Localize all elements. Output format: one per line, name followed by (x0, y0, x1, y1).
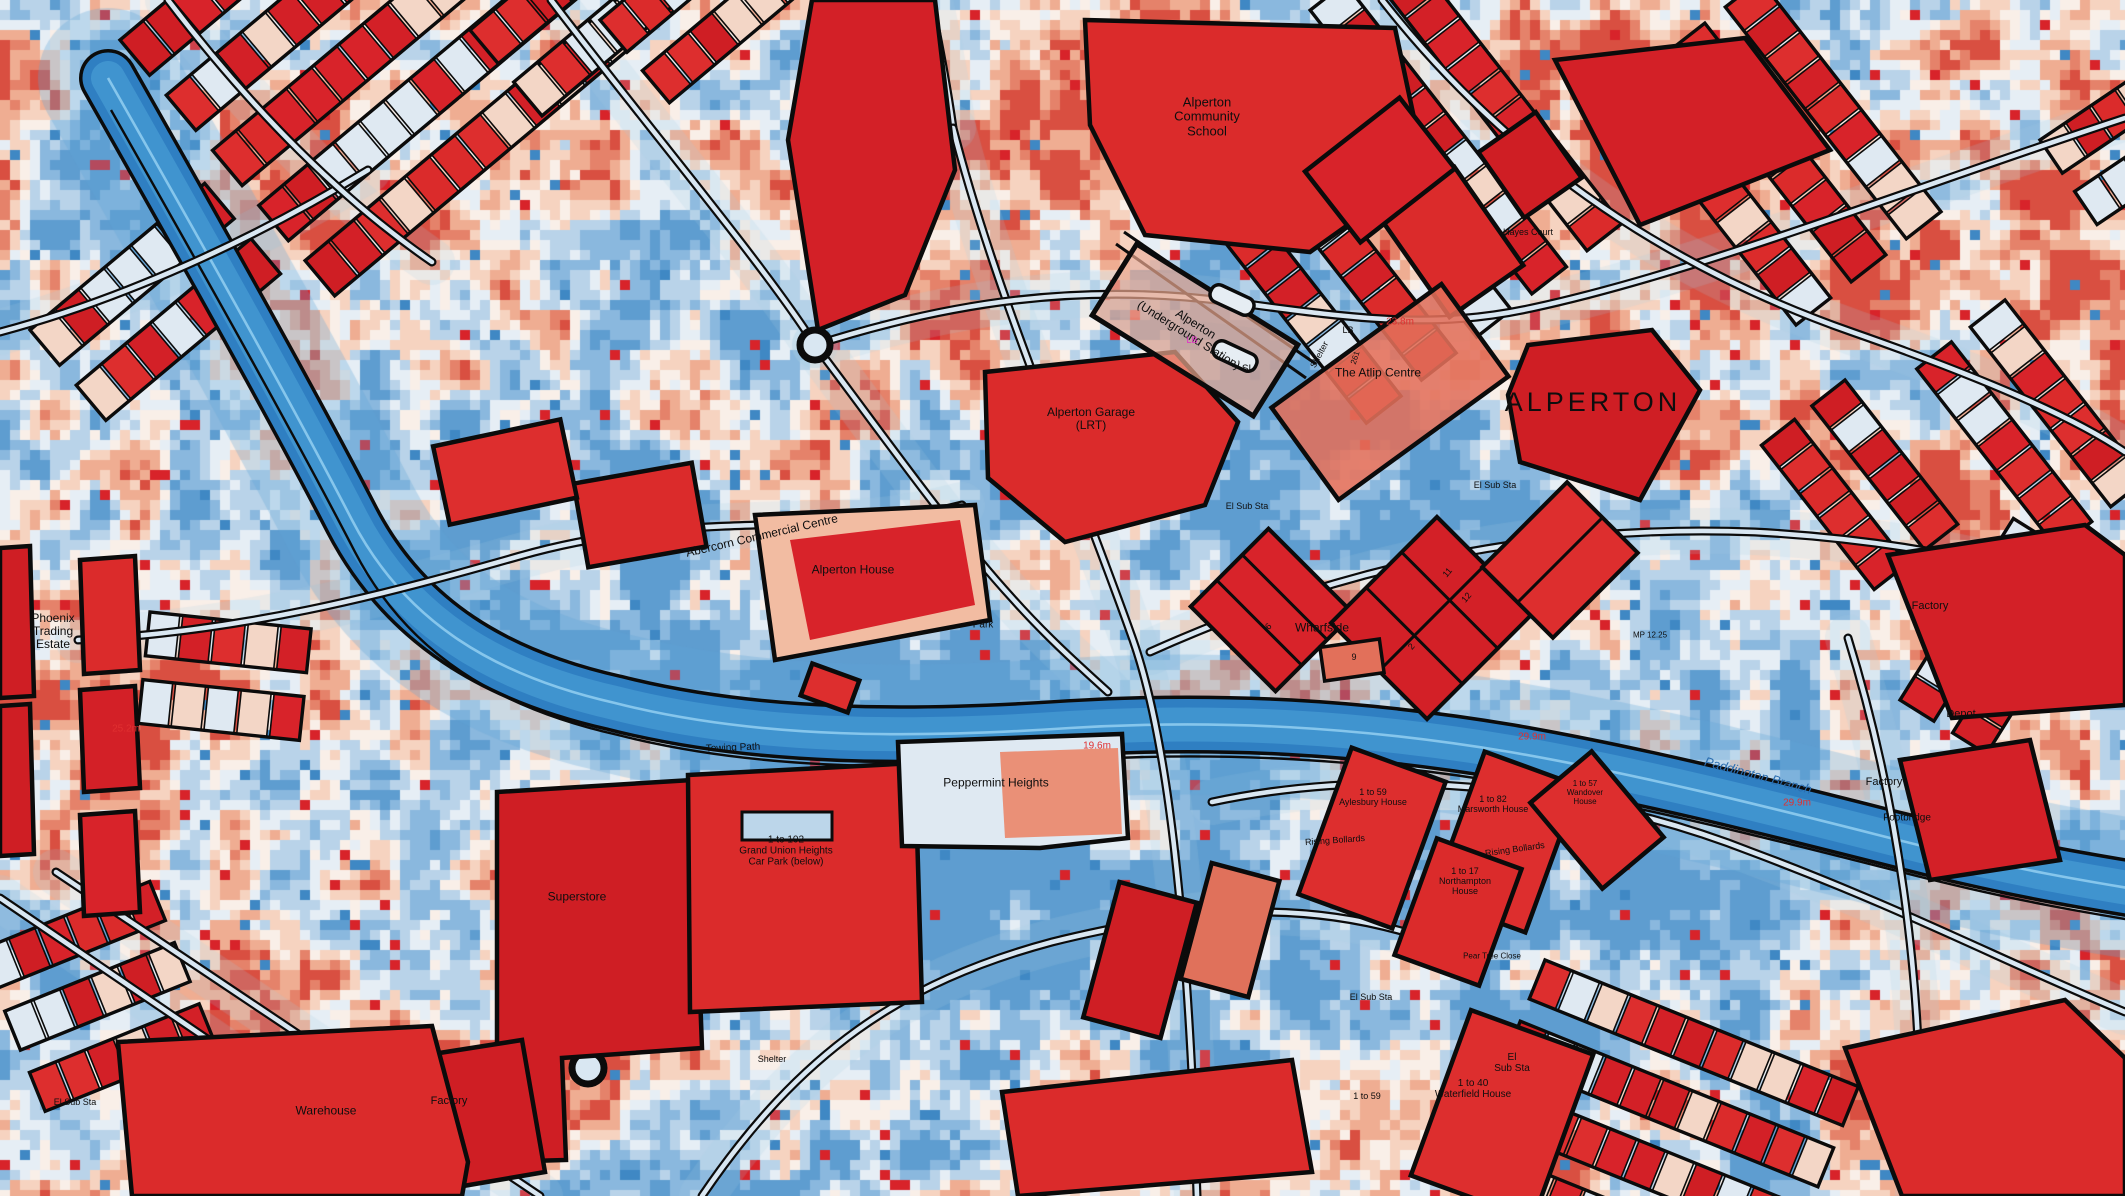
building-peppermint-heights-warm (1000, 748, 1122, 838)
terrace-row-group (600, 0, 810, 103)
building (80, 556, 140, 674)
building (1845, 1000, 2125, 1196)
building (0, 546, 34, 698)
terrace-house (244, 622, 278, 669)
map-vector-layer (0, 0, 2125, 1196)
building (118, 1026, 468, 1196)
building (1320, 639, 1384, 681)
terrace-house (204, 687, 238, 734)
building (688, 763, 922, 1012)
building-group (574, 463, 707, 568)
building (1508, 330, 1700, 500)
building-group (433, 419, 577, 524)
courtyard (742, 812, 832, 840)
thermal-map-canvas[interactable]: Alperton Community SchoolALPERTONAlperto… (0, 0, 2125, 1196)
terrace-house (178, 615, 212, 662)
building (80, 811, 140, 916)
building (1083, 882, 1197, 1038)
building-group (1083, 882, 1197, 1038)
building (433, 419, 577, 524)
building (788, 0, 955, 330)
building (0, 704, 34, 856)
building-group (1181, 863, 1280, 997)
mini-roundabout (800, 330, 830, 360)
building (1002, 1060, 1312, 1196)
building (80, 686, 140, 792)
building (1900, 740, 2060, 880)
terrace-house (237, 690, 271, 737)
terrace-house (171, 683, 205, 730)
wharfside-units (1320, 639, 1384, 681)
building (574, 463, 707, 568)
building (1181, 863, 1280, 997)
